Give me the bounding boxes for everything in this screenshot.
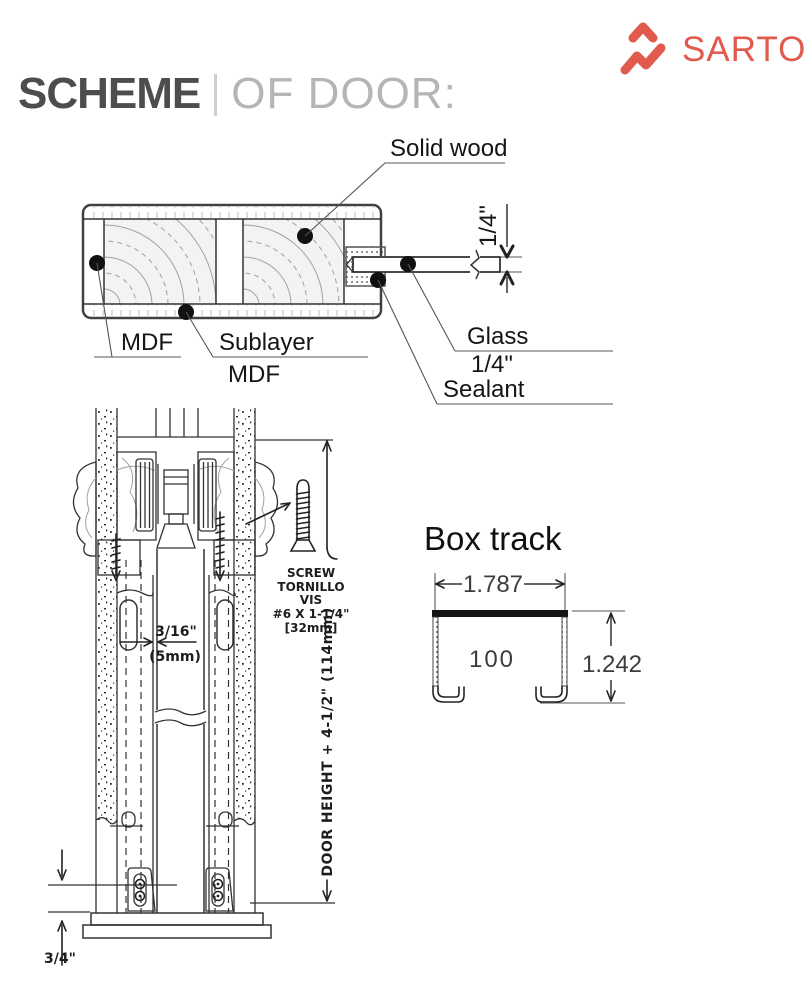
screw-label-line4: #6 X 1-1/4" xyxy=(273,607,350,621)
sill-plate-top xyxy=(91,913,263,925)
glass-thickness-dim-label: 1/4" xyxy=(475,205,502,247)
box-track-diagram: Box track 1.787 100 xyxy=(424,520,642,703)
glass-label-line2: 1/4" xyxy=(471,351,513,378)
right-drywall-lump xyxy=(255,462,278,556)
scheme-of-door-page: SARTO SCHEME OF DOOR: xyxy=(0,0,812,990)
sublayer-label-line1: Sublayer xyxy=(219,329,314,356)
screw-label-line1: SCREW xyxy=(287,566,335,580)
solid-wood-label: Solid wood xyxy=(390,135,507,162)
sealant-label: Sealant xyxy=(443,376,525,403)
sill-plate-bottom xyxy=(83,925,271,938)
gap-dim-label-line2: (5mm) xyxy=(149,649,201,665)
sublayer-label-line2: MDF xyxy=(228,361,280,388)
gap-dim-label-line1: 3/16" xyxy=(155,624,197,640)
floor-guides xyxy=(110,812,239,911)
door-height-dimension: DOOR HEIGHT + 4-1/2" (114mm) xyxy=(250,441,337,903)
box-track-model-label: 100 xyxy=(469,646,515,673)
left-drywall-lump xyxy=(73,462,96,556)
screw-label-line2: TORNILLO xyxy=(277,580,344,594)
box-track-title: Box track xyxy=(424,520,562,557)
roller-assembly xyxy=(136,459,216,548)
mounting-screws xyxy=(112,512,224,580)
technical-drawing: 1/4" Solid wood MDF Sublayer MDF Glass 1… xyxy=(0,0,812,990)
door-cross-section: 1/4" Solid wood MDF Sublayer MDF Glass 1… xyxy=(0,135,613,445)
box-track-width-label: 1.787 xyxy=(463,571,523,598)
track-cross-section: 3/16" (5mm) SCREW TORNILLO VIS #6 X 1-1/… xyxy=(44,408,349,967)
right-stud xyxy=(234,408,255,820)
door-panel xyxy=(155,549,206,913)
screw-drawing xyxy=(246,480,315,551)
mdf-label: MDF xyxy=(121,329,173,356)
bottom-clearance-label: 3/4" xyxy=(44,951,76,967)
right-adjustment-slot xyxy=(217,600,233,650)
gap-dimension: 3/16" (5mm) xyxy=(120,624,201,665)
door-height-dim-label: DOOR HEIGHT + 4-1/2" (114mm) xyxy=(320,607,336,876)
glass-thickness-dimension: 1/4" xyxy=(475,204,522,293)
glass-label-line1: Glass xyxy=(467,323,528,350)
left-stud xyxy=(96,408,117,820)
box-track-height-label: 1.242 xyxy=(582,651,642,678)
screw-label-line3: VIS xyxy=(300,593,322,607)
